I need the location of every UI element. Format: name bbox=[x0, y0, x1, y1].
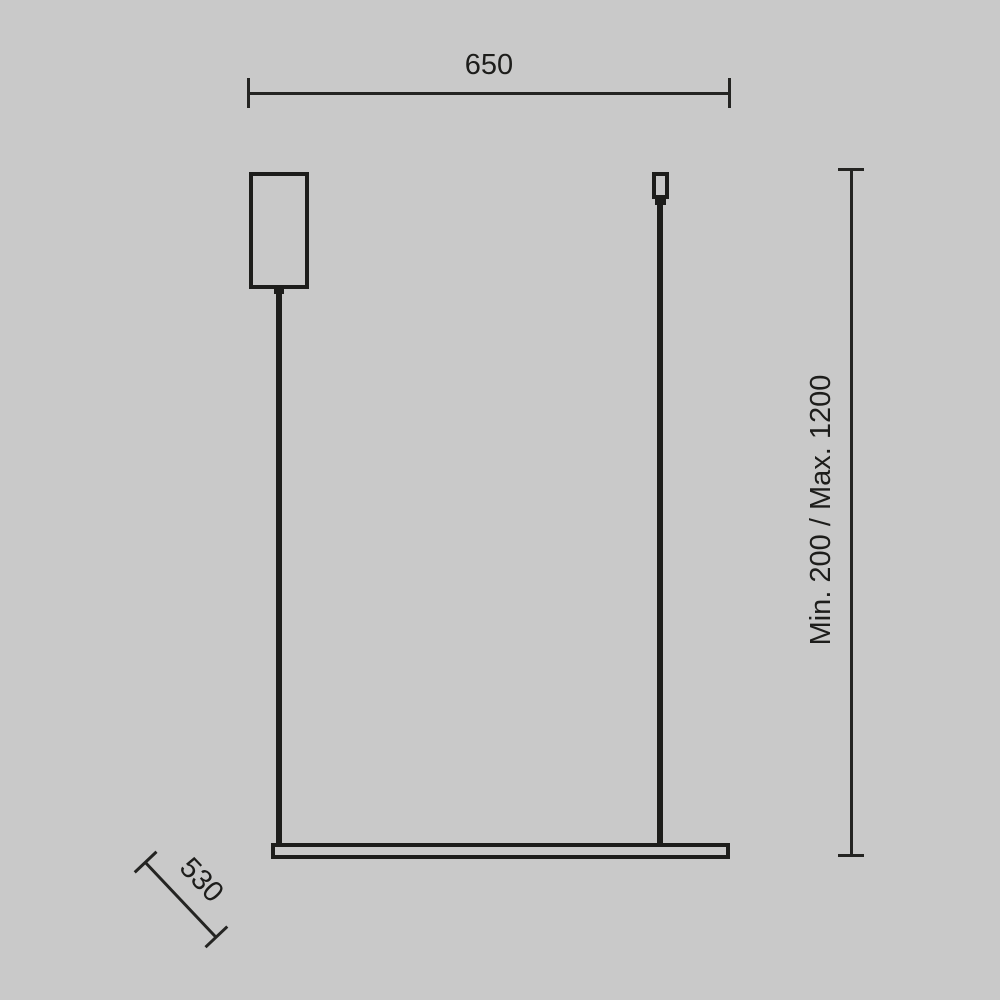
lamp-bar bbox=[271, 843, 730, 859]
height-dimension-label: Min. 200 / Max. 1200 bbox=[806, 375, 838, 646]
suspension-wire-right bbox=[657, 204, 663, 845]
ceiling-canopy bbox=[249, 172, 309, 289]
height-dimension-tick-bottom bbox=[838, 854, 864, 857]
width-dimension-line bbox=[248, 92, 730, 95]
height-dimension-tick-top bbox=[838, 168, 864, 171]
drawing-canvas: 650 Min. 200 / Max. 1200 530 bbox=[0, 0, 1000, 1000]
cable-gripper bbox=[652, 172, 669, 199]
width-dimension-label: 650 bbox=[248, 50, 730, 82]
suspension-wire-left bbox=[276, 289, 282, 845]
width-dimension-tick-left bbox=[247, 78, 250, 108]
length-dimension-label: 530 bbox=[153, 832, 248, 929]
length-dimension: 530 bbox=[146, 861, 217, 937]
width-dimension-tick-right bbox=[728, 78, 731, 108]
height-dimension-line bbox=[850, 169, 853, 856]
